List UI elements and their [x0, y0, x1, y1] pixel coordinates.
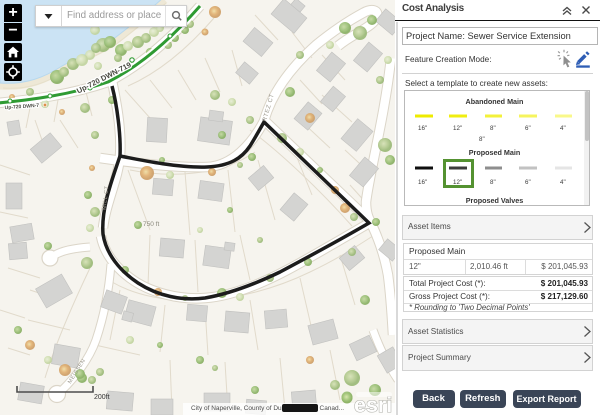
svg-text:750 ft: 750 ft: [143, 221, 159, 228]
